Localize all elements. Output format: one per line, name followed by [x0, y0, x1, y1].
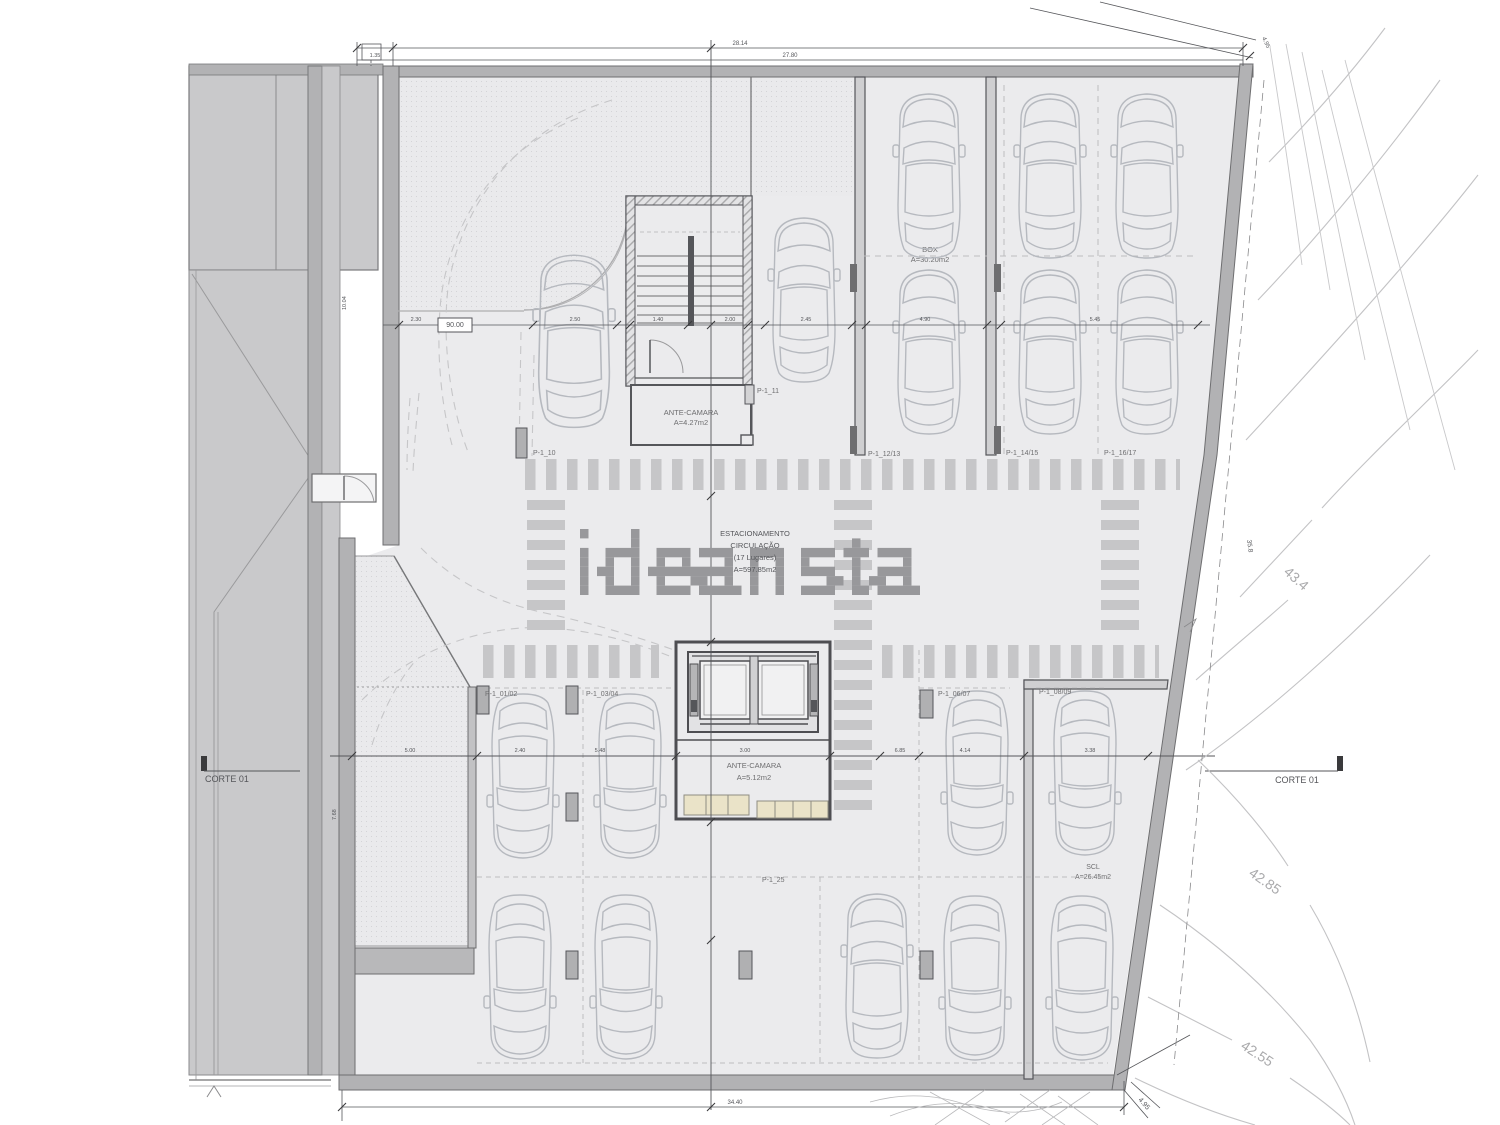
svg-text:SCL: SCL	[1086, 864, 1100, 871]
svg-text:CORTE 01: CORTE 01	[1275, 775, 1319, 785]
svg-text:P-1_08/09: P-1_08/09	[1039, 689, 1071, 696]
svg-text:A=5.12m2: A=5.12m2	[737, 773, 771, 782]
svg-text:(17 Lugares): (17 Lugares)	[734, 553, 777, 562]
svg-text:ESTACIONAMENTO: ESTACIONAMENTO	[720, 529, 790, 538]
svg-text:5.48: 5.48	[595, 748, 606, 754]
svg-text:10.04: 10.04	[342, 296, 348, 310]
svg-text:6.85: 6.85	[895, 748, 906, 754]
svg-text:2.50: 2.50	[570, 317, 581, 323]
svg-text:A=4.27m2: A=4.27m2	[674, 418, 708, 427]
svg-text:P-1_25: P-1_25	[762, 877, 785, 884]
svg-text:2.40: 2.40	[515, 748, 526, 754]
svg-text:3.38: 3.38	[1085, 748, 1096, 754]
svg-text:3.00: 3.00	[740, 748, 751, 754]
svg-text:P-1_10: P-1_10	[533, 450, 556, 457]
svg-text:CORTE 01: CORTE 01	[205, 774, 249, 784]
svg-text:A=597.85m2: A=597.85m2	[734, 565, 777, 574]
svg-text:1.35: 1.35	[370, 53, 381, 59]
svg-text:7.68: 7.68	[332, 809, 338, 820]
svg-text:28.14: 28.14	[732, 41, 748, 47]
svg-text:5.00: 5.00	[405, 748, 416, 754]
svg-text:P-1_14/15: P-1_14/15	[1006, 450, 1038, 457]
svg-text:2.45: 2.45	[801, 317, 812, 323]
svg-text:P-1_16/17: P-1_16/17	[1104, 450, 1136, 457]
svg-text:27.80: 27.80	[782, 53, 798, 59]
svg-text:4.90: 4.90	[920, 317, 931, 323]
svg-text:5.45: 5.45	[1090, 317, 1101, 323]
svg-text:1.40: 1.40	[653, 317, 664, 323]
svg-text:34.40: 34.40	[727, 1100, 743, 1106]
svg-text:P-1_11: P-1_11	[757, 388, 779, 395]
svg-text:P-1_03/04: P-1_03/04	[586, 691, 618, 698]
svg-text:4.14: 4.14	[960, 748, 971, 754]
svg-text:2.00: 2.00	[725, 317, 736, 323]
svg-text:90.00: 90.00	[446, 322, 464, 329]
svg-text:P-1_12/13: P-1_12/13	[868, 451, 900, 458]
svg-text:P-1_06/07: P-1_06/07	[938, 691, 970, 698]
svg-text:ANTE-CAMARA: ANTE-CAMARA	[727, 761, 782, 770]
svg-text:CIRCULAÇÃO: CIRCULAÇÃO	[730, 541, 779, 550]
svg-text:P-1_01/02: P-1_01/02	[485, 691, 517, 698]
svg-text:2.30: 2.30	[411, 317, 422, 323]
svg-text:ANTE-CAMARA: ANTE-CAMARA	[664, 408, 719, 417]
